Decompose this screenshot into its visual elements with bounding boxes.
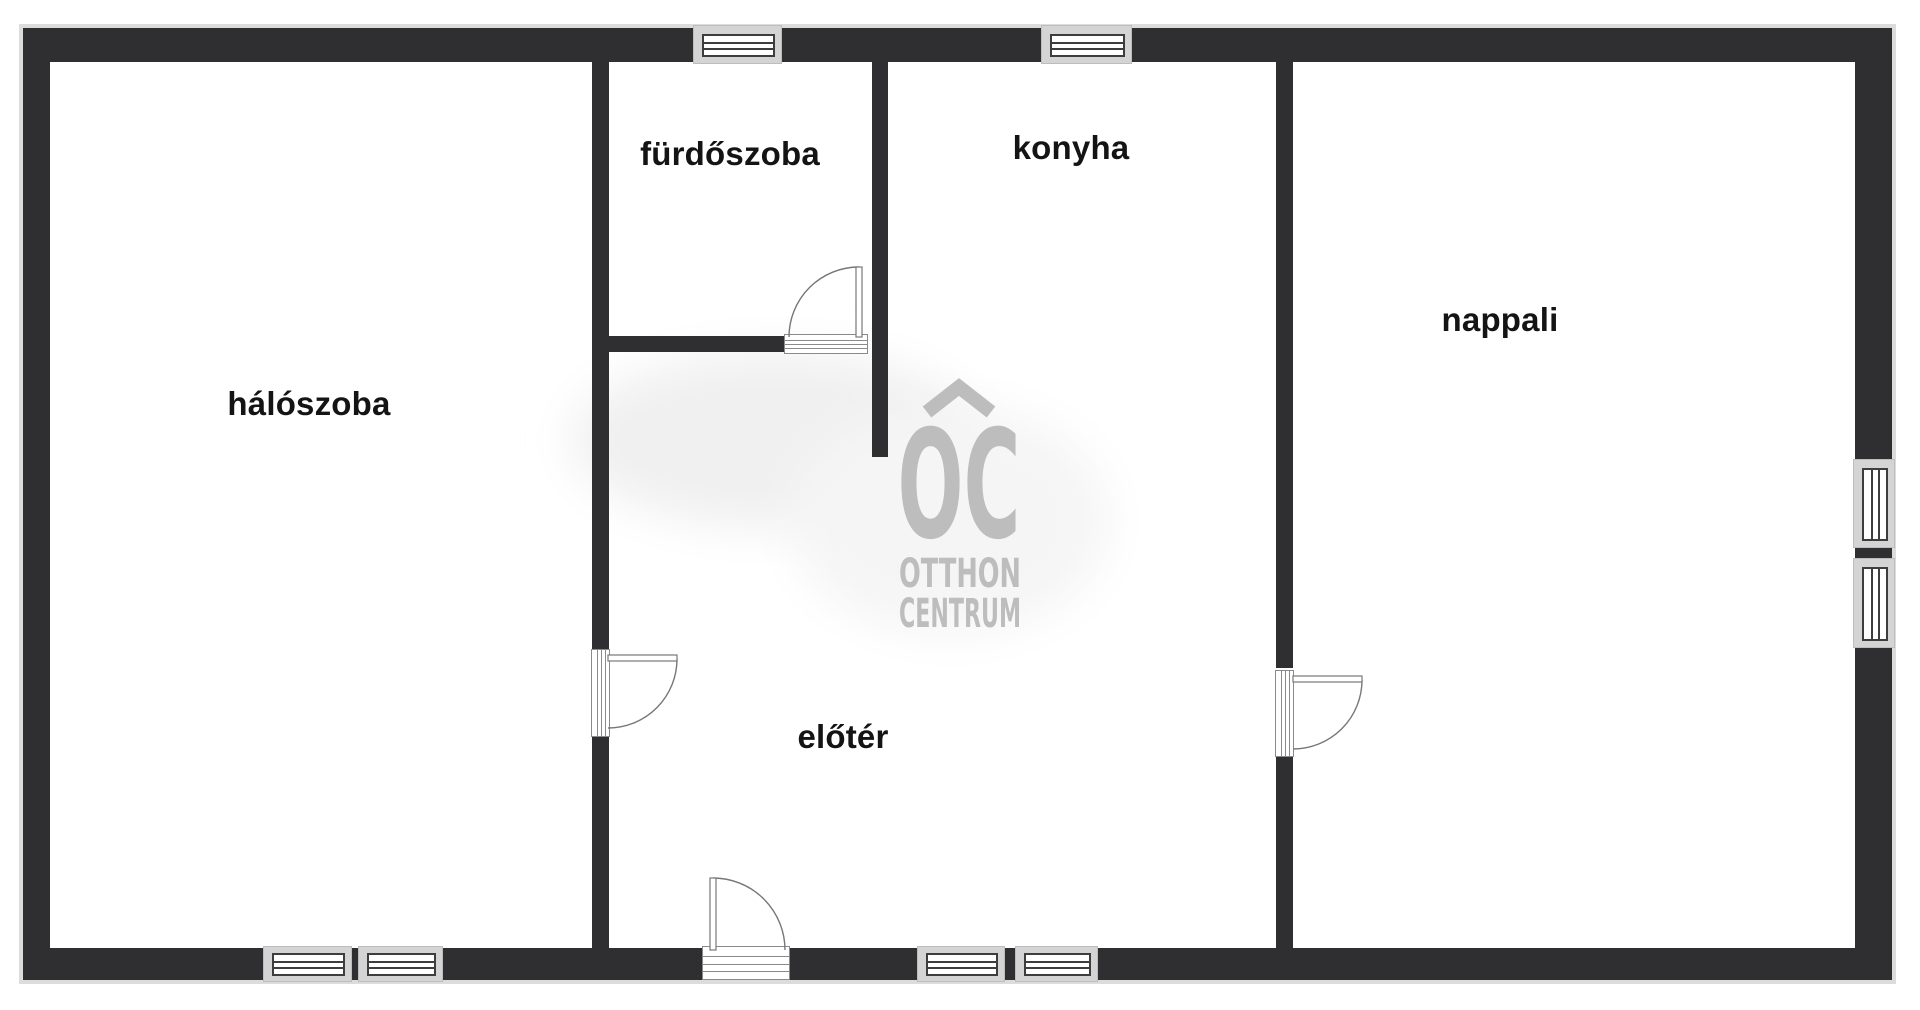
door-arc-nappali (1293, 680, 1362, 749)
label-furdoszoba: fürdőszoba (640, 135, 820, 173)
door-leaf-haloszoba (608, 655, 677, 661)
door-leaf-nappali (1293, 676, 1362, 682)
doors-and-watermark: OC OTTHON CENTRUM (0, 0, 1920, 1010)
watermark-monogram: OC (898, 399, 1021, 573)
label-nappali: nappali (1442, 301, 1559, 339)
door-leaf-entrance (710, 878, 716, 950)
label-konyha: konyha (1013, 129, 1130, 167)
door-arc-furdoszoba (789, 267, 859, 337)
door-arc-entrance (713, 878, 785, 950)
floorplan-canvas: OC OTTHON CENTRUM hálószoba fürdőszoba k… (0, 0, 1920, 1010)
door-arc-haloszoba (608, 659, 677, 728)
label-haloszoba: hálószoba (227, 385, 390, 423)
door-leaf-furdoszoba (856, 267, 862, 337)
label-eloter: előtér (797, 718, 888, 756)
watermark-line2: CENTRUM (899, 591, 1021, 637)
